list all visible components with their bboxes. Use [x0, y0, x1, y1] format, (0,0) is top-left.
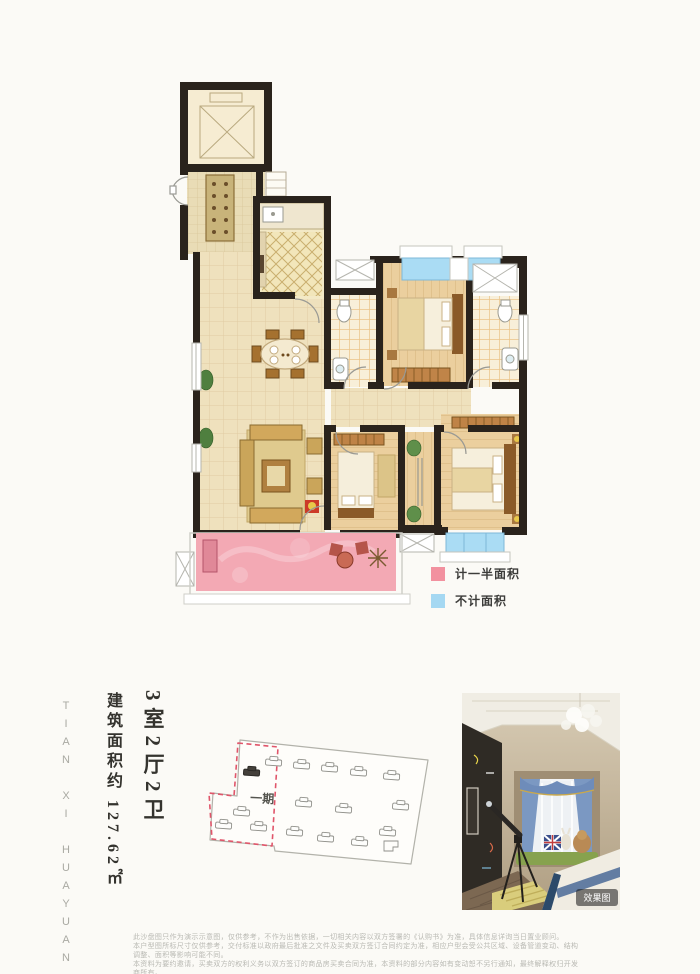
- building-area-text: 建筑面积约 127.62㎡: [100, 692, 124, 888]
- entry-rug: [206, 175, 234, 241]
- flyer-page: 计一半面积 不计面积 3室2厅2卫 建筑面积约 127.62㎡ TIAN XI …: [0, 0, 700, 974]
- phase-label: 一期: [250, 790, 275, 806]
- excluded-area-label: 不计面积: [455, 592, 507, 609]
- watermark-text: 效果图: [583, 892, 610, 903]
- half-area-label: 计一半面积: [455, 565, 520, 582]
- excluded-area-swatch: [431, 594, 445, 608]
- bedroom-photo: 效果图: [462, 693, 620, 910]
- floor-plan: [160, 50, 540, 615]
- legend: 计一半面积 不计面积: [431, 565, 520, 609]
- entry-door: [170, 177, 188, 205]
- bay-window-bottom: [440, 533, 510, 562]
- disclaimer: 此沙盘图只作为演示示意图，仅供参考，不作为出售依据，一切相关内容以双方签署的《认…: [133, 933, 583, 974]
- legend-excluded-area: 不计面积: [431, 592, 520, 609]
- site-plan: 一期: [188, 718, 443, 903]
- disclaimer-line: 本户型图所标尺寸仅供参考，交付标准以政府最后批准之文件及买卖双方签订合同约定为准…: [133, 942, 583, 960]
- unit-type-title: 3室2厅2卫: [138, 690, 168, 827]
- disclaimer-line: 此沙盘图只作为演示示意图，仅供参考，不作为出售依据，一切相关内容以双方签署的《认…: [133, 933, 583, 942]
- balcony-half-area: [184, 533, 410, 604]
- disclaimer-line: 本资料为要约邀请，买卖双方的权利义务以双方签订的商品房买卖合同为准，本资料的部分…: [133, 960, 583, 974]
- project-name-en: TIAN XI HUAYUAN: [60, 700, 72, 970]
- bathroom-right-floor: [473, 296, 520, 387]
- half-area-swatch: [431, 567, 445, 581]
- site-boundary: [210, 740, 428, 864]
- legend-half-area: 计一半面积: [431, 565, 520, 582]
